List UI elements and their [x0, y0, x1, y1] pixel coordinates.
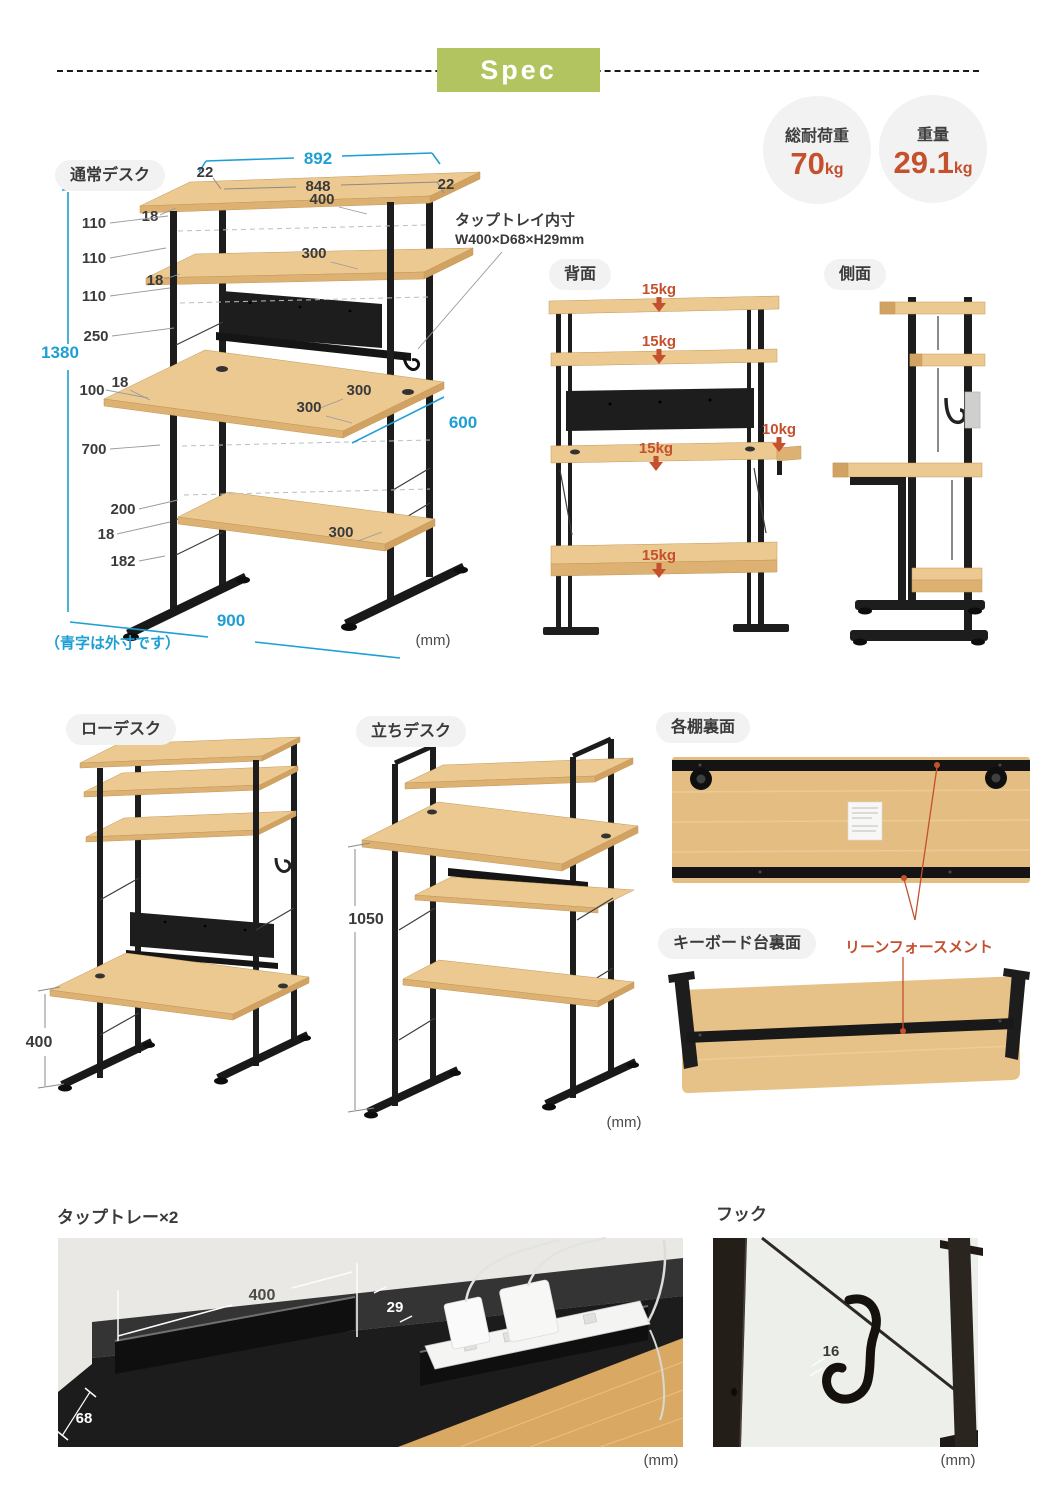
weight-label: 重量 [917, 121, 949, 145]
load-capacity-label: 総耐荷重 [785, 122, 849, 146]
svg-text:18: 18 [112, 374, 129, 391]
standing-desk-dimension: 1050 [342, 843, 390, 1112]
dim-standing-height: 1050 [348, 911, 384, 928]
svg-text:22: 22 [438, 176, 455, 193]
svg-text:300: 300 [296, 399, 321, 416]
section-label-low-desk: ローデスク [66, 714, 176, 745]
dim-outer-base: 900 [217, 611, 245, 630]
tap-tray-label: タップトレー×2 [57, 1203, 178, 1228]
svg-text:110: 110 [82, 250, 106, 267]
svg-text:22: 22 [197, 164, 214, 181]
shelf-back-photo [672, 757, 1030, 883]
dim-hook-opening: 16 [823, 1343, 840, 1360]
low-desk-frame [50, 737, 311, 1092]
side-hook-icon [946, 398, 965, 422]
standing-desk-frame [362, 739, 639, 1119]
unit-label: (mm) [644, 1452, 679, 1469]
low-desk-diagram: 400 [15, 700, 345, 1100]
load-bottom: 15kg [642, 547, 676, 564]
dim-tray-width: 400 [249, 1287, 276, 1304]
down-arrow-icon [649, 462, 663, 471]
svg-text:182: 182 [110, 553, 135, 570]
normal-desk-diagram: 892 1380 900 600 22 848 22 400 18 110 11… [30, 140, 610, 670]
svg-text:110: 110 [82, 215, 106, 232]
load-desk: 15kg [639, 440, 673, 457]
svg-text:300: 300 [301, 245, 326, 262]
blue-dims-note: （青字は外寸です） [45, 632, 180, 653]
svg-text:400: 400 [309, 191, 334, 208]
section-label-keyboard-back: キーボード台裏面 [658, 928, 816, 959]
load-shelf2: 15kg [642, 333, 676, 350]
unit-label: (mm) [941, 1452, 976, 1469]
spec-banner-title: Spec [480, 55, 557, 86]
dim-outer-width: 892 [304, 149, 332, 168]
dim-tray-slot: 29 [387, 1299, 404, 1316]
weight-value: 29.1kg [893, 147, 972, 178]
side-view-diagram [820, 250, 1015, 660]
load-top: 15kg [642, 281, 676, 298]
load-capacity-value: 70kg [790, 148, 843, 179]
spec-page: Spec 総耐荷重 70kg 重量 29.1kg [0, 0, 1045, 1503]
unit-label: (mm) [607, 1114, 642, 1131]
load-labels: 15kg 15kg 15kg 10kg 15kg [639, 281, 796, 578]
unit-label: (mm) [416, 632, 451, 649]
section-label-back-view: 背面 [549, 259, 611, 290]
section-label-shelf-back: 各棚裏面 [656, 712, 750, 743]
section-label-side-view: 側面 [824, 259, 886, 290]
tap-tray-side [965, 392, 980, 428]
svg-text:タップトレイ内寸: タップトレイ内寸 [455, 211, 575, 229]
back-view-diagram: 15kg 15kg 15kg 10kg 15kg [540, 250, 815, 660]
low-desk-dimension: 400 [26, 987, 64, 1088]
load-side: 10kg [762, 421, 796, 438]
svg-text:200: 200 [110, 501, 135, 518]
hook-label: フック [716, 1200, 767, 1225]
dim-outer-depth: 600 [449, 413, 477, 432]
keyboard-back-photo [668, 968, 1030, 1093]
side-frame [833, 297, 988, 646]
svg-text:300: 300 [328, 524, 353, 541]
weight-badge: 重量 29.1kg [879, 95, 987, 203]
svg-text:18: 18 [98, 526, 115, 543]
tap-tray-photo: 400 29 68 (mm) [58, 1238, 683, 1470]
svg-text:250: 250 [83, 328, 108, 345]
section-label-normal-desk: 通常デスク [55, 160, 165, 191]
dim-outer-height: 1380 [41, 343, 79, 362]
section-label-standing-desk: 立ちデスク [356, 716, 466, 747]
load-capacity-badge: 総耐荷重 70kg [763, 96, 871, 204]
reinforcement-label: リーンフォースメント [845, 936, 993, 957]
shelf-back-photos [655, 750, 1040, 1100]
hook-photo: 16 (mm) [713, 1238, 985, 1470]
svg-text:18: 18 [142, 208, 159, 225]
charger-large [499, 1279, 559, 1342]
spec-banner: Spec [437, 48, 600, 92]
svg-text:W400×D68×H29mm: W400×D68×H29mm [455, 231, 584, 247]
dim-tray-depth: 68 [76, 1410, 93, 1427]
standing-desk-diagram: 1050 (mm) [330, 700, 665, 1140]
svg-text:300: 300 [346, 382, 371, 399]
dim-low-height: 400 [26, 1034, 53, 1051]
svg-text:18: 18 [147, 272, 164, 289]
svg-text:700: 700 [81, 441, 106, 458]
svg-text:110: 110 [82, 288, 106, 305]
svg-text:100: 100 [79, 382, 104, 399]
side-hook-icon [276, 858, 290, 872]
